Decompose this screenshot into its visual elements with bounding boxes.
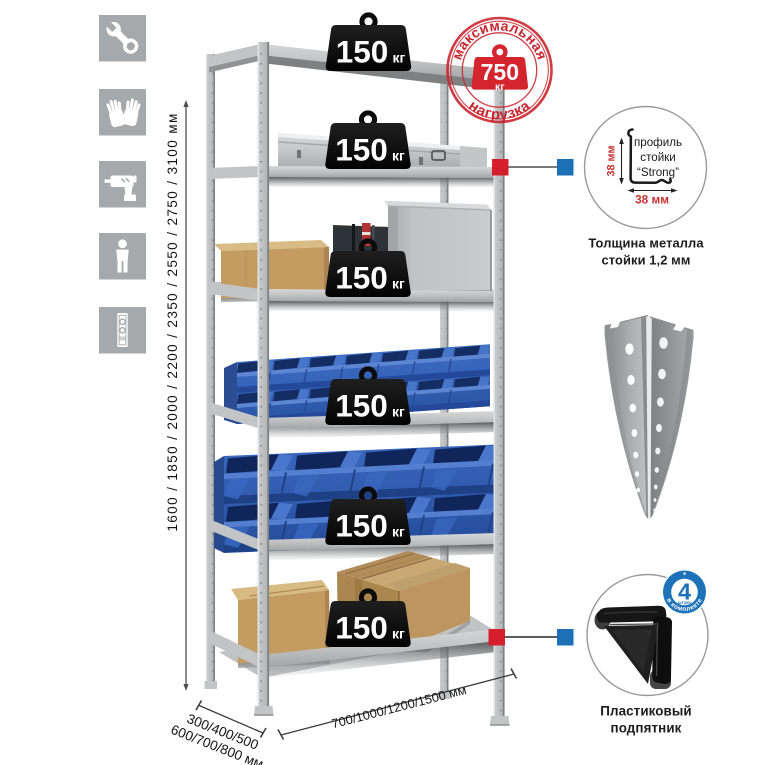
svg-text:38 мм: 38 мм	[635, 193, 669, 207]
svg-text:профиль: профиль	[634, 136, 682, 149]
svg-text:стойки: стойки	[640, 151, 675, 164]
svg-text:штуки: штуки	[678, 600, 691, 605]
svg-text:стойки 1,2 мм: стойки 1,2 мм	[602, 253, 691, 268]
svg-text:кг: кг	[495, 81, 505, 93]
svg-text:Пластиковый: Пластиковый	[600, 704, 692, 719]
svg-text:Толщина металла: Толщина металла	[588, 236, 704, 251]
svg-text:подпятник: подпятник	[611, 721, 682, 736]
svg-text:1600 / 1850 / 2000 / 2200 / 23: 1600 / 1850 / 2000 / 2200 / 2350 / 2550 …	[165, 112, 180, 531]
svg-text:38 мм: 38 мм	[606, 145, 618, 176]
svg-text:“Strong”: “Strong”	[637, 166, 679, 179]
